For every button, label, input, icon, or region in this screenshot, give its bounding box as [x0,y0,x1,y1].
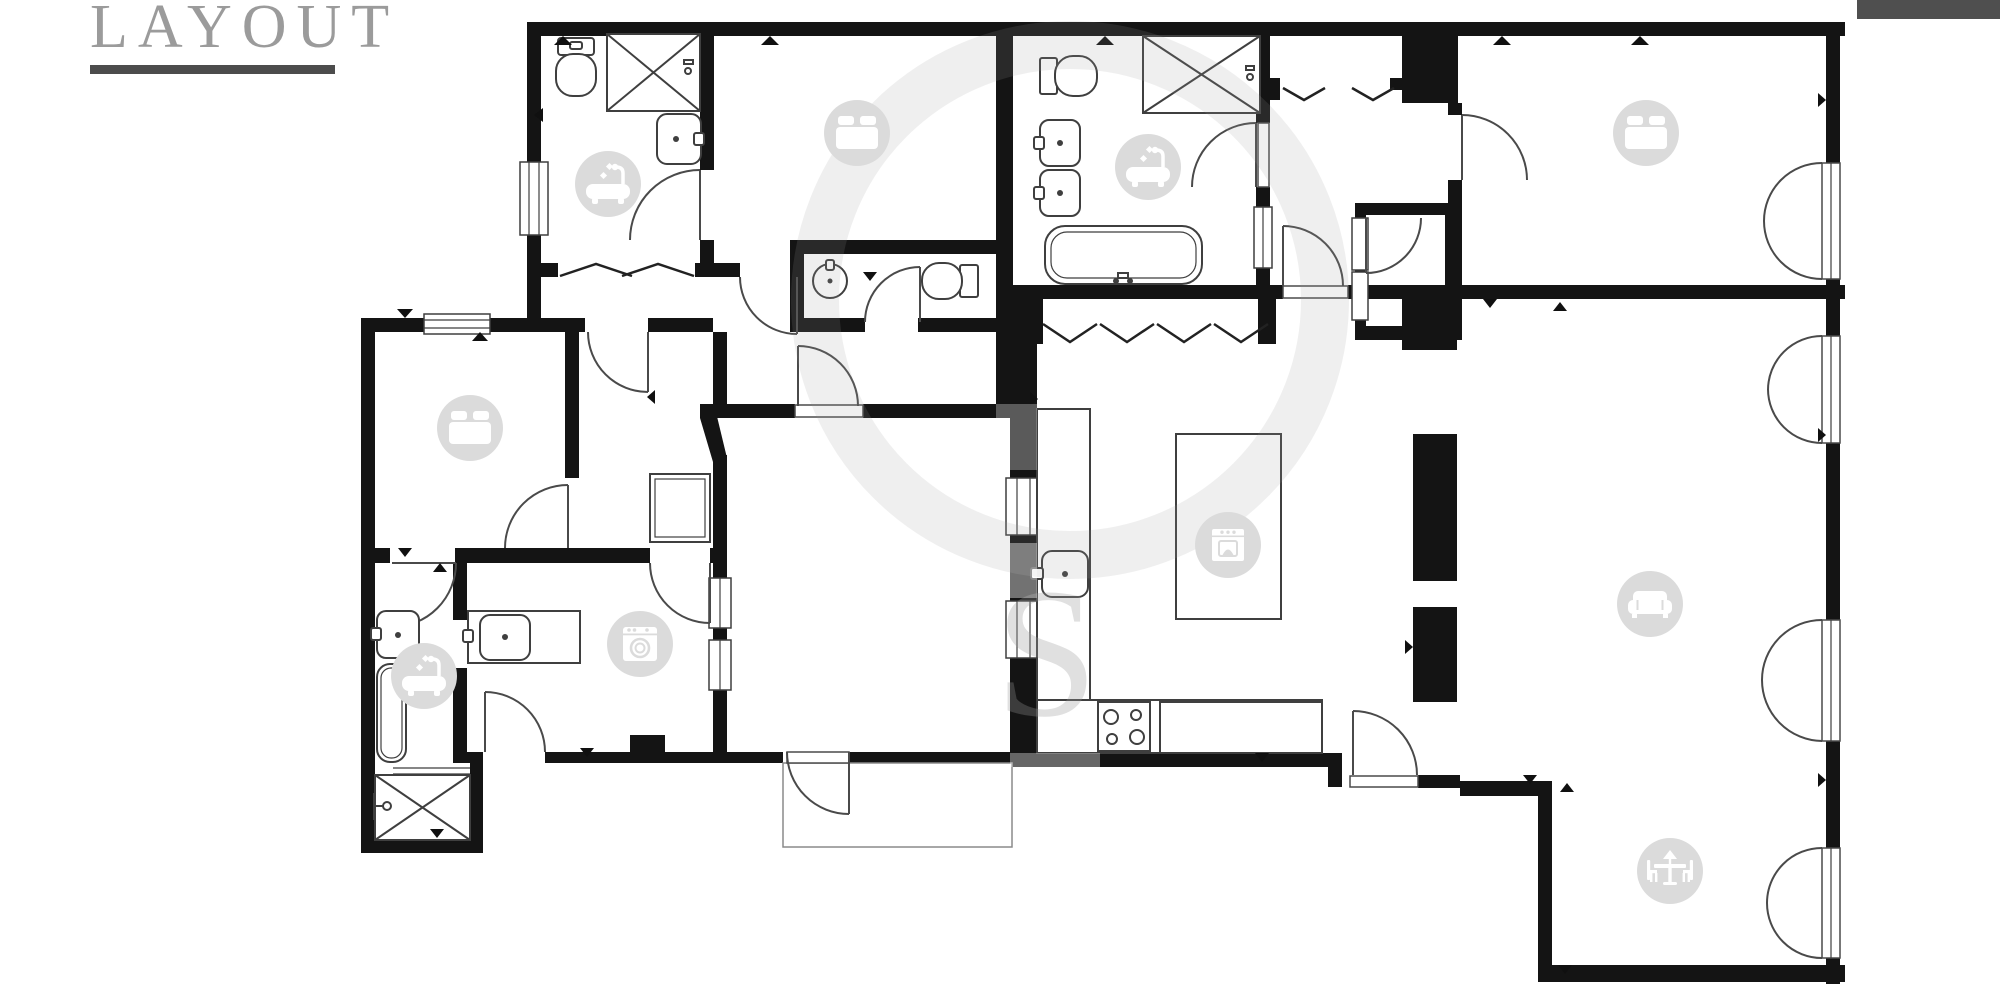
hall-cabinet [650,474,710,542]
laundry-counter [463,611,580,663]
shower-fixture [607,34,700,111]
toilet-fixture [556,38,596,96]
wardrobe-chevrons [1283,88,1394,100]
wc-toilet-fixture [922,263,978,299]
door-bedroom-3 [505,485,568,548]
small-shower [374,768,470,840]
glazing-ensuite [1254,207,1272,268]
room-icon-bedroom-2 [824,100,890,166]
bathtub-fixture [1045,226,1202,284]
french-arcs-dining [1767,848,1822,958]
sliding-door-chevrons [560,264,694,276]
page: LAYOUT [0,0,2000,1000]
ensuite-sink-fixtures [1034,120,1080,216]
room-icon-bedroom-1 [1613,100,1679,166]
page-title-block: LAYOUT [90,0,399,74]
room-icon-bathroom-small [391,643,457,709]
window-bedroom-3 [424,314,490,334]
title-underline [90,65,335,74]
floorplan: S [0,0,2000,1000]
sink-fixture [657,114,704,164]
room-icon-bathroom-main [575,151,641,217]
door-entry [1353,711,1417,775]
french-arcs-living-1 [1768,336,1822,443]
door-closet [1366,218,1421,273]
door-bedroom-1 [1462,115,1527,180]
french-arcs-living-2 [1762,620,1822,741]
page-title: LAYOUT [90,0,399,63]
room-icon-kitchen [1195,512,1261,578]
door-laundry-top [650,563,710,623]
french-arcs-bedroom-1 [1764,163,1822,279]
room-icon-dining-area [1637,838,1703,904]
room-icon-living-room [1617,571,1683,637]
door-hallway-top [588,332,648,392]
door-laundry-bottom [485,692,545,752]
room-icon-bedroom-3 [437,395,503,461]
room-icon-bathroom-ensuite [1115,134,1181,200]
threshold-balcony [787,752,849,763]
window-left-bathroom [520,162,548,235]
room-icon-laundry [607,611,673,677]
accordion-partition [1043,324,1268,342]
threshold-entry [1350,776,1418,787]
door-bedroom-2 [740,277,797,334]
